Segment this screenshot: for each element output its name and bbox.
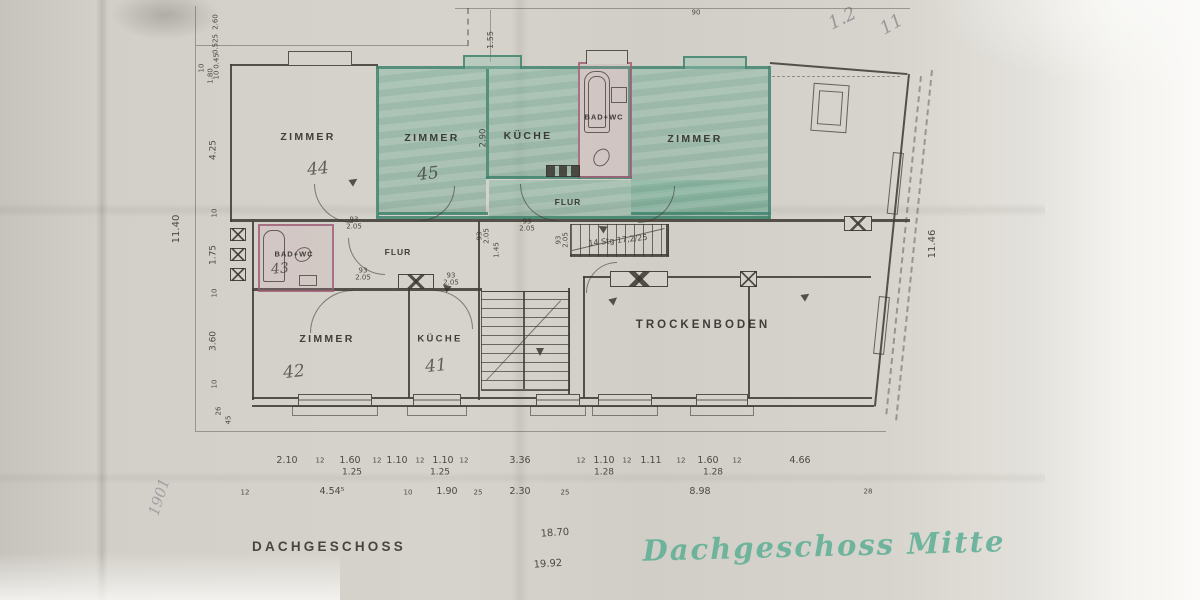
window: [536, 394, 580, 406]
room-number-42: 42: [282, 361, 306, 383]
dim-label: 8.98: [689, 487, 710, 497]
dimension-line: [196, 431, 886, 432]
scanned-floor-plan: 1901 1.2 11: [0, 0, 1200, 600]
dim-label: 1.60: [697, 456, 718, 466]
dim-label: 12: [460, 457, 469, 464]
door-size-label: 932.05: [477, 228, 492, 244]
wall: [230, 219, 910, 222]
dim-label: 90: [692, 9, 701, 16]
dim-label: 1.60: [339, 456, 360, 466]
dim-label: 1.75: [209, 245, 218, 265]
window: [696, 394, 748, 406]
room-label-bad-wc-top: BAD+WC: [584, 113, 623, 122]
window-sill: [592, 406, 658, 416]
skylight-inner: [817, 90, 843, 126]
extension-line: [195, 6, 196, 432]
dim-label: 12: [241, 489, 250, 496]
dim-label: 12: [623, 457, 632, 464]
dim-label: 3.60: [209, 331, 218, 351]
wall: [486, 69, 489, 179]
wall: [376, 66, 379, 217]
bottom-light-area: [0, 552, 340, 600]
sink: [299, 275, 317, 286]
sheet-title: DACHGESCHOSS: [252, 539, 406, 554]
wall: [770, 62, 908, 75]
dim-label: 25: [474, 489, 483, 496]
roof-window: [873, 296, 890, 355]
dim-label: 12: [577, 457, 586, 464]
door-size-label: 932.05: [556, 232, 571, 248]
handwritten-title: Dachgeschoss Mitte: [642, 524, 1006, 567]
stair-flight-lower: [481, 291, 570, 391]
window-sill: [292, 406, 378, 416]
dim-label: 25: [561, 489, 570, 496]
window-recess: [463, 55, 522, 69]
door-arrow: [800, 290, 811, 301]
wall: [768, 66, 771, 219]
wall-pier-hatch: [230, 228, 246, 241]
dim-label-total-right: 11.46: [928, 230, 939, 259]
top-right-light-area: [930, 0, 1200, 90]
room-label-trockenboden: TROCKENBODEN: [636, 319, 770, 331]
roof-window: [887, 152, 904, 215]
dim-label: 12: [416, 457, 425, 464]
extension-line: [196, 45, 468, 46]
room-label-flur-left: FLUR: [385, 247, 412, 257]
wall-pier-hatch: [610, 271, 668, 287]
window-recess: [586, 50, 628, 64]
dim-label: 1.10: [386, 456, 407, 466]
room-label-zimmer-45: ZIMMER: [404, 132, 459, 144]
dim-label: 1.28: [703, 468, 723, 477]
room-number-45: 45: [416, 163, 440, 185]
wall-pier-hatch: [230, 268, 246, 281]
room-label-kueche-41: KÜCHE: [417, 334, 462, 345]
wall: [478, 221, 480, 400]
dim-label: 2.90: [480, 129, 489, 148]
room-number-44: 44: [306, 158, 330, 180]
dim-label: 2.60: [212, 14, 219, 30]
dim-label-total-left: 11.40: [172, 215, 183, 244]
window: [298, 394, 372, 406]
dim-label: 1.11: [640, 456, 661, 466]
dim-label: 2.30: [509, 487, 530, 497]
wall: [408, 288, 410, 398]
dim-label: 10: [404, 489, 413, 496]
door-swing-arc: [586, 262, 617, 293]
dim-label-total: 18.70: [540, 528, 569, 540]
stair-arrow: [536, 348, 544, 356]
dim-label: 10: [211, 209, 218, 218]
dim-label: 1.10: [432, 456, 453, 466]
dim-label: 1.10: [593, 456, 614, 466]
dim-label: 1.55: [487, 31, 495, 49]
wall-pier-hatch: [740, 271, 757, 287]
door-swing-arc: [310, 290, 353, 333]
door-size-label: 932.05: [346, 217, 362, 232]
door-arrow: [608, 294, 619, 305]
wall: [230, 64, 232, 222]
extension-line-dashed: [467, 8, 469, 46]
room-number-43: 43: [270, 260, 289, 278]
dim-label: 10: [211, 289, 218, 298]
door-size-label: 932.05: [355, 268, 371, 283]
sink: [611, 87, 627, 103]
dim-label: 26: [215, 407, 222, 416]
dim-label: 4.54⁵: [320, 487, 345, 497]
window-recess: [683, 56, 747, 69]
wall-pier-hatch: [398, 274, 434, 289]
dim-label: 1.45: [493, 242, 500, 258]
dim-label: 1.25: [342, 468, 362, 477]
window: [598, 394, 652, 406]
room-fill-kueche-top: [489, 69, 578, 178]
door-size-label: 932.05: [443, 273, 459, 288]
dim-label: 1.25: [430, 468, 450, 477]
door-swing-arc: [434, 290, 473, 329]
dim-label: 45: [225, 416, 232, 425]
dim-label: 28: [864, 488, 873, 495]
room-label-flur-top: FLUR: [555, 197, 582, 207]
room-number-41: 41: [424, 355, 448, 377]
dim-label: 0.45: [213, 53, 220, 69]
extension-line: [455, 8, 910, 9]
room-label-zimmer-right: ZIMMER: [667, 133, 722, 145]
window-recess: [288, 51, 352, 65]
dim-label: 0.525: [212, 34, 219, 54]
dim-label: 1.90: [436, 487, 457, 497]
dim-label: 4.25: [209, 140, 218, 160]
wall-pier-hatch: [844, 216, 872, 231]
dim-label: 1.80: [207, 68, 214, 84]
window-sill: [690, 406, 754, 416]
paper-edge: [96, 0, 108, 600]
room-label-zimmer-44: ZIMMER: [280, 131, 335, 143]
dim-label: 10: [211, 380, 218, 389]
dim-label: 1.28: [594, 468, 614, 477]
dim-label: 12: [316, 457, 325, 464]
pencil-note: 1901: [145, 476, 174, 518]
dim-label: 4.66: [789, 456, 810, 466]
dim-label: 10: [198, 64, 205, 73]
corner-smudge: [110, 0, 220, 40]
room-label-zimmer-42: ZIMMER: [299, 333, 354, 345]
kitchen-counter: [546, 165, 580, 177]
room-label-kueche-top: KÜCHE: [504, 130, 553, 142]
wall: [748, 276, 750, 398]
dim-label: 3.36: [509, 456, 530, 466]
window-sill: [530, 406, 586, 416]
dim-label: 12: [733, 457, 742, 464]
dim-label-total: 19.92: [533, 559, 562, 571]
window-sill: [407, 406, 467, 416]
roof-line-dashed: [772, 76, 900, 77]
dim-label: 12: [677, 457, 686, 464]
wall-pier-hatch: [230, 248, 246, 261]
door-size-label: 932.05: [519, 219, 535, 234]
window: [413, 394, 461, 406]
dim-label: 12: [373, 457, 382, 464]
dim-label: 2.10: [276, 456, 297, 466]
pencil-note: 11: [876, 10, 906, 40]
wall: [583, 276, 585, 398]
wall: [252, 221, 254, 400]
room-label-bad-wc-43: BAD+WC: [274, 250, 313, 259]
